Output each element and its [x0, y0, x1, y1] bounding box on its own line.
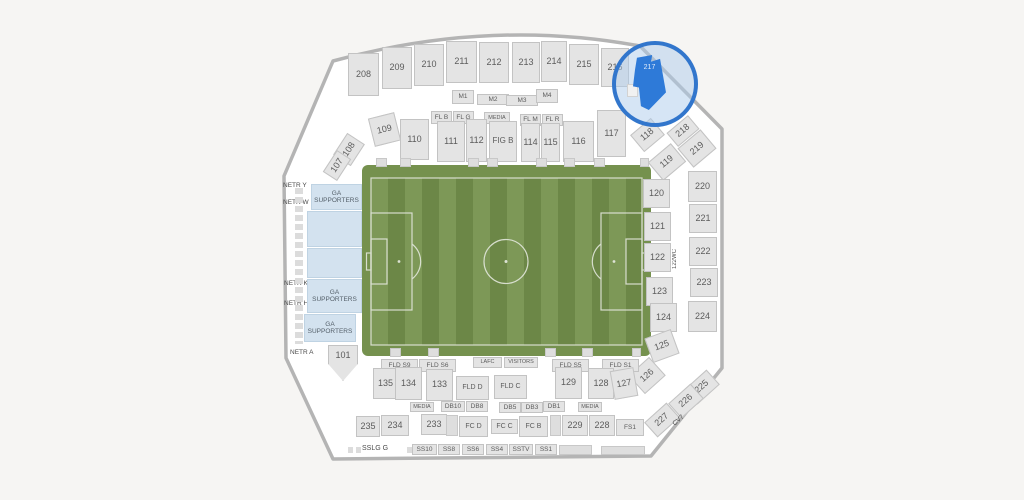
deco-block: [582, 348, 593, 357]
section-213[interactable]: 213: [512, 42, 540, 83]
section-ga-supporters[interactable]: [307, 211, 362, 247]
section-fig-b[interactable]: FIG B: [489, 121, 517, 162]
section-112[interactable]: 112: [466, 119, 487, 162]
deco-block: [559, 445, 592, 455]
suite-boxes-strip: [295, 188, 303, 344]
deco-block: [390, 348, 401, 357]
section-db1[interactable]: DB1: [543, 401, 565, 412]
section-224[interactable]: 224: [688, 301, 717, 332]
section-221[interactable]: 221: [689, 204, 717, 233]
section-db5[interactable]: DB5: [499, 402, 521, 413]
section-117[interactable]: 117: [597, 110, 626, 157]
section-214[interactable]: 214: [541, 41, 567, 82]
section-db8[interactable]: DB8: [466, 401, 488, 412]
deco-block: [487, 158, 498, 167]
section-ss8[interactable]: SS8: [438, 444, 460, 455]
section-m4[interactable]: M4: [536, 89, 558, 103]
section-m2[interactable]: M2: [477, 94, 509, 105]
section-ss1[interactable]: SS1: [535, 444, 557, 455]
section-fs1[interactable]: FS1: [616, 419, 644, 436]
deco-block: [348, 447, 361, 453]
section-media[interactable]: MEDIA: [410, 402, 434, 412]
deco-block: [446, 415, 458, 436]
soccer-field: [362, 165, 651, 356]
section-115[interactable]: 115: [541, 123, 560, 162]
section-db10[interactable]: DB10: [441, 401, 465, 412]
deco-block: [536, 158, 547, 167]
deco-block: [601, 446, 645, 455]
section-media[interactable]: MEDIA: [578, 402, 602, 412]
section-db3[interactable]: DB3: [521, 402, 543, 413]
section-124[interactable]: 124: [650, 303, 677, 332]
section-ga-supporters[interactable]: GA SUPPORTERS: [304, 314, 356, 342]
deco-block: [545, 348, 556, 357]
section-210[interactable]: 210: [414, 44, 444, 86]
section-122wc: 122WC: [670, 242, 681, 275]
section-211[interactable]: 211: [446, 41, 477, 83]
seating-map: 208209210211212213214215216217M1M2M3M4FL…: [0, 0, 1024, 500]
section-234[interactable]: 234: [381, 415, 409, 436]
section-134[interactable]: 134: [395, 367, 422, 400]
section-sstv[interactable]: SSTV: [509, 444, 533, 455]
deco-block: [428, 348, 439, 357]
section-123[interactable]: 123: [646, 277, 673, 306]
section-229[interactable]: 229: [562, 415, 588, 436]
section-114[interactable]: 114: [521, 123, 540, 162]
section-sslg-g: SSLG G: [362, 444, 406, 454]
section-233[interactable]: 233: [421, 414, 447, 435]
section-111[interactable]: 111: [437, 121, 465, 162]
deco-block: [376, 158, 387, 167]
section-m1[interactable]: M1: [452, 90, 474, 104]
section-120[interactable]: 120: [643, 179, 670, 208]
section-121[interactable]: 121: [644, 212, 671, 241]
section-222[interactable]: 222: [689, 237, 717, 266]
section-215[interactable]: 215: [569, 44, 599, 85]
section-228[interactable]: 228: [589, 415, 615, 436]
section-223[interactable]: 223: [690, 268, 718, 297]
deco-block: [564, 158, 575, 167]
deco-block: [632, 348, 641, 357]
section-129[interactable]: 129: [555, 367, 582, 399]
section-ga-supporters[interactable]: GA SUPPORTERS: [311, 184, 362, 210]
section-visitors[interactable]: VISITORS: [504, 357, 538, 368]
section-212[interactable]: 212: [479, 42, 509, 83]
section-133[interactable]: 133: [426, 369, 453, 401]
section-220[interactable]: 220: [688, 171, 717, 202]
section-ss10[interactable]: SS10: [412, 444, 437, 455]
section-lafc[interactable]: LAFC: [473, 357, 502, 368]
section-fc-d[interactable]: FC D: [459, 416, 488, 437]
deco-block: [550, 415, 561, 436]
section-ga-supporters[interactable]: GA SUPPORTERS: [307, 279, 362, 313]
section-209[interactable]: 209: [382, 47, 412, 89]
deco-block: [468, 158, 479, 167]
section-netr-a: NETR A: [290, 348, 320, 357]
section-116[interactable]: 116: [563, 121, 594, 162]
deco-block: [640, 158, 649, 167]
section-235[interactable]: 235: [356, 416, 380, 437]
section-ga-supporters[interactable]: [307, 248, 362, 278]
section-fc-b[interactable]: FC B: [519, 416, 548, 437]
section-fc-c[interactable]: FC C: [491, 419, 518, 434]
section-ss4[interactable]: SS4: [486, 444, 508, 455]
deco-block: [400, 158, 411, 167]
section-fld-d[interactable]: FLD D: [456, 376, 489, 400]
zoom-lens-ring: [612, 41, 698, 127]
section-127[interactable]: 127: [610, 367, 639, 400]
deco-block: [594, 158, 605, 167]
section-fld-c[interactable]: FLD C: [494, 375, 527, 399]
section-110[interactable]: 110: [400, 119, 429, 160]
field-markings: [362, 165, 651, 356]
section-208[interactable]: 208: [348, 53, 379, 96]
section-m3[interactable]: M3: [506, 95, 538, 106]
section-122[interactable]: 122: [644, 243, 671, 272]
section-ss6[interactable]: SS6: [462, 444, 484, 455]
